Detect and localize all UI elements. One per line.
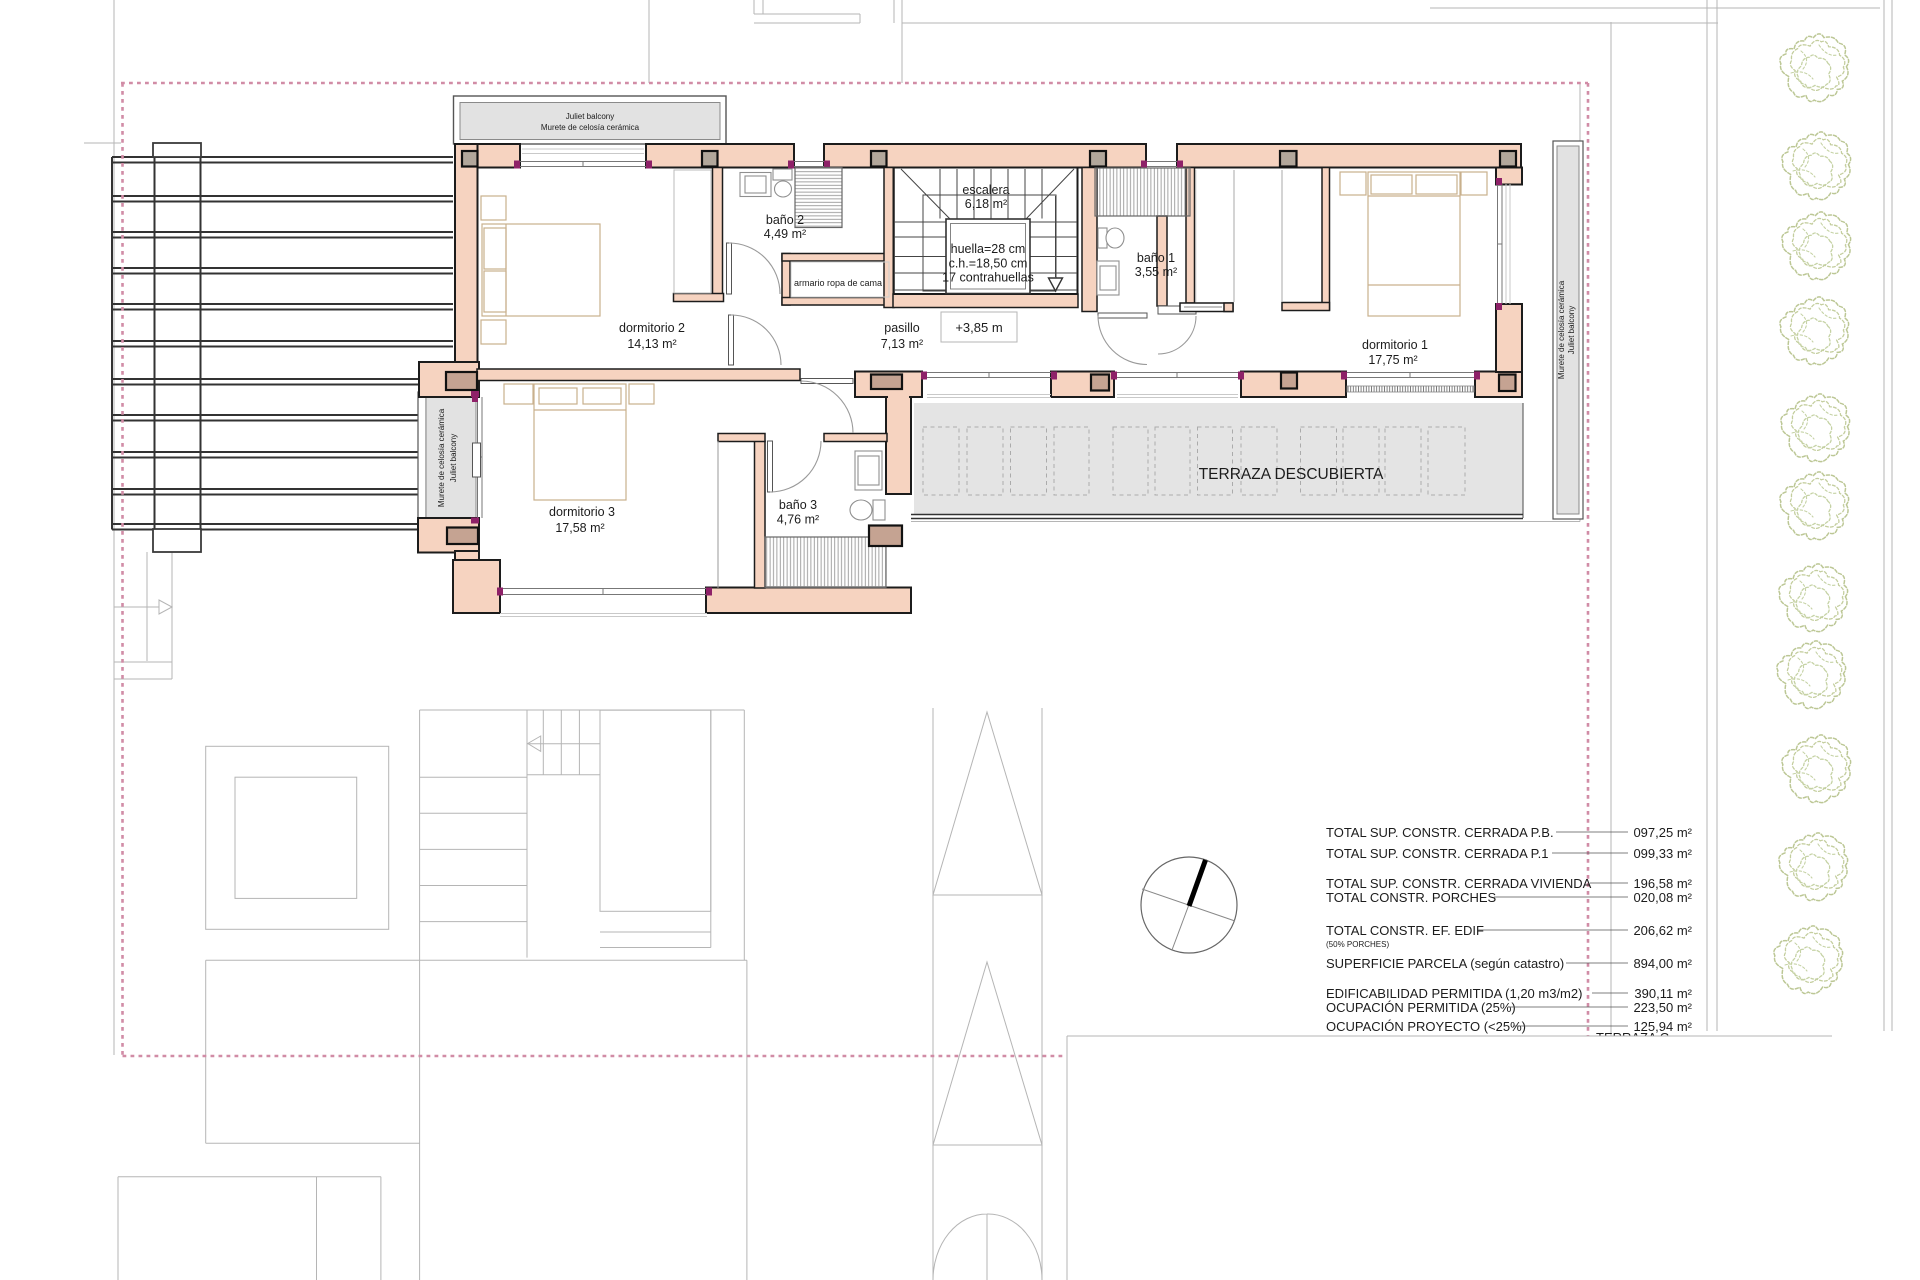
svg-text:206,62 m²: 206,62 m² xyxy=(1633,923,1692,938)
svg-text:Murete de celosía cerámica: Murete de celosía cerámica xyxy=(1557,280,1566,379)
svg-text:6,18 m²: 6,18 m² xyxy=(965,197,1007,211)
svg-text:223,50 m²: 223,50 m² xyxy=(1633,1000,1692,1015)
svg-text:3,55 m²: 3,55 m² xyxy=(1135,265,1177,279)
svg-text:097,25 m²: 097,25 m² xyxy=(1633,825,1692,840)
svg-text:390,11 m²: 390,11 m² xyxy=(1634,986,1692,1001)
svg-text:125,94 m²: 125,94 m² xyxy=(1633,1019,1692,1034)
svg-text:SUPERFICIE PARCELA (según cata: SUPERFICIE PARCELA (según catastro) xyxy=(1326,956,1564,971)
svg-text:TERRAZA DESCUBIERTA: TERRAZA DESCUBIERTA xyxy=(1199,466,1384,483)
svg-text:894,00 m²: 894,00 m² xyxy=(1633,956,1692,971)
svg-text:17,75 m²: 17,75 m² xyxy=(1368,353,1417,367)
svg-text:baño 3: baño 3 xyxy=(779,498,817,512)
svg-text:TOTAL SUP. CONSTR. CERRADA P.B: TOTAL SUP. CONSTR. CERRADA P.B. xyxy=(1326,825,1554,840)
svg-text:dormitorio 3: dormitorio 3 xyxy=(549,505,615,519)
svg-text:huella=28 cm: huella=28 cm xyxy=(951,242,1026,256)
svg-text:Murete de celosía cerámica: Murete de celosía cerámica xyxy=(541,123,640,132)
svg-text:TOTAL CONSTR. EF. EDIF: TOTAL CONSTR. EF. EDIF xyxy=(1326,923,1484,938)
svg-text:020,08 m²: 020,08 m² xyxy=(1633,890,1692,905)
svg-text:Juliet balcony: Juliet balcony xyxy=(566,112,614,121)
svg-text:4,49 m²: 4,49 m² xyxy=(764,227,806,241)
svg-text:14,13 m²: 14,13 m² xyxy=(627,337,676,351)
svg-text:(50% PORCHES): (50% PORCHES) xyxy=(1326,940,1389,949)
svg-text:dormitorio 1: dormitorio 1 xyxy=(1362,338,1428,352)
svg-text:17,58 m²: 17,58 m² xyxy=(555,521,604,535)
svg-text:Juliet balcony: Juliet balcony xyxy=(449,434,458,482)
svg-text:17 contrahuellas: 17 contrahuellas xyxy=(942,271,1034,285)
svg-text:196,58 m²: 196,58 m² xyxy=(1633,876,1692,891)
svg-text:baño 2: baño 2 xyxy=(766,213,804,227)
svg-text:armario ropa de cama: armario ropa de cama xyxy=(794,278,882,288)
svg-text:TOTAL CONSTR. PORCHES: TOTAL CONSTR. PORCHES xyxy=(1326,890,1497,905)
svg-text:EDIFICABILIDAD PERMITIDA (1,20: EDIFICABILIDAD PERMITIDA (1,20 m3/m2) xyxy=(1326,986,1582,1001)
svg-text:OCUPACIÓN PERMITIDA (25%): OCUPACIÓN PERMITIDA (25%) xyxy=(1326,1000,1516,1015)
svg-text:escalera: escalera xyxy=(962,183,1009,197)
svg-text:TOTAL SUP. CONSTR. CERRADA P.1: TOTAL SUP. CONSTR. CERRADA P.1 xyxy=(1326,846,1549,861)
svg-text:baño 1: baño 1 xyxy=(1137,251,1175,265)
svg-text:099,33 m²: 099,33 m² xyxy=(1633,846,1692,861)
svg-text:+3,85 m: +3,85 m xyxy=(955,320,1002,335)
svg-text:pasillo: pasillo xyxy=(884,321,919,335)
svg-text:c.h.=18,50 cm: c.h.=18,50 cm xyxy=(949,257,1028,271)
svg-text:7,13 m²: 7,13 m² xyxy=(881,337,923,351)
svg-text:4,76 m²: 4,76 m² xyxy=(777,513,819,527)
svg-text:OCUPACIÓN PROYECTO (<25%): OCUPACIÓN PROYECTO (<25%) xyxy=(1326,1019,1526,1034)
svg-text:TOTAL SUP. CONSTR. CERRADA VIV: TOTAL SUP. CONSTR. CERRADA VIVIENDA xyxy=(1326,876,1592,891)
svg-text:Murete de celosía cerámica: Murete de celosía cerámica xyxy=(437,408,446,507)
svg-text:dormitorio 2: dormitorio 2 xyxy=(619,321,685,335)
svg-text:Juliet balcony: Juliet balcony xyxy=(1567,306,1576,354)
